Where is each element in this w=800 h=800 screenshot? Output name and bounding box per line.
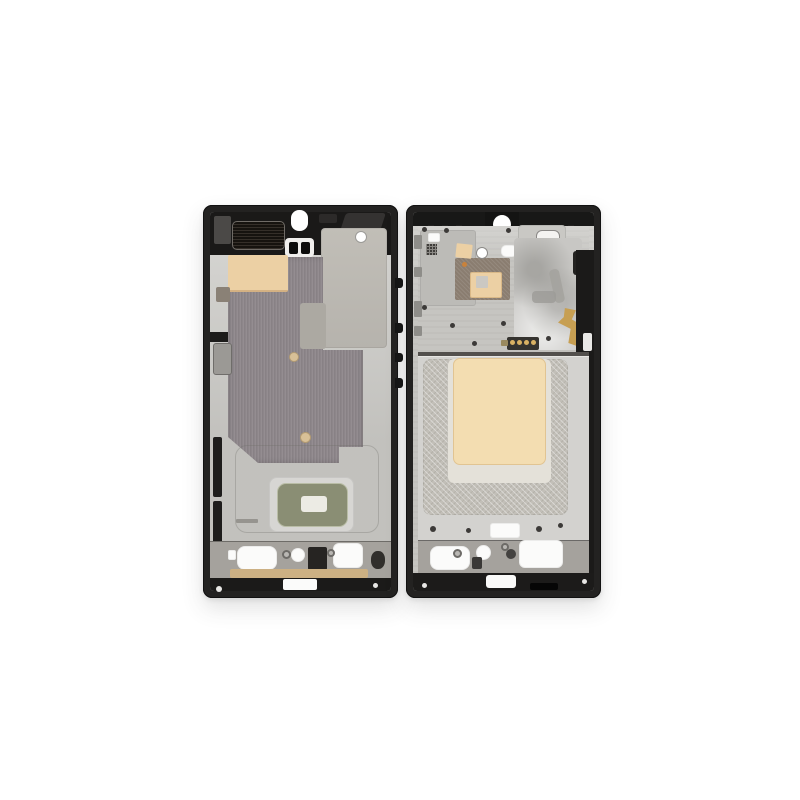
bottom-screw-a xyxy=(282,550,291,559)
gold-contact-2 xyxy=(517,340,522,345)
top-clip xyxy=(319,214,337,223)
cavity-screw-2 xyxy=(466,528,471,533)
bottom-screw-b xyxy=(327,549,335,557)
bottom-screw-a xyxy=(453,549,462,558)
usb-port-cutout xyxy=(283,579,317,590)
corner-antenna-block xyxy=(214,216,231,244)
screw-3 xyxy=(506,228,511,233)
screw-6 xyxy=(501,321,506,326)
coil-center-cutout xyxy=(301,496,327,512)
bottom-cutout-d xyxy=(228,550,236,560)
small-sticker-a xyxy=(455,243,472,259)
left-tab-2 xyxy=(414,267,422,277)
screw-dot-upper xyxy=(289,352,299,362)
speaker-mesh xyxy=(232,221,285,250)
usb-port-cutout xyxy=(486,575,516,588)
antenna-slot-mid xyxy=(213,437,222,497)
screw-hole-white xyxy=(476,247,488,259)
gold-contact-3 xyxy=(524,340,529,345)
cavity-screw-4 xyxy=(558,523,563,528)
gold-contact-4 xyxy=(531,340,536,345)
band-sliver xyxy=(583,333,592,351)
laser-etched-marking xyxy=(236,519,258,523)
bottom-cutout-a xyxy=(430,546,470,570)
side-button-nub-1 xyxy=(395,278,403,288)
bottom-screw-b xyxy=(501,543,509,551)
bottom-hole-right xyxy=(373,583,378,588)
cavity-cutout xyxy=(490,523,520,538)
screw-2 xyxy=(444,228,449,233)
side-button-nub-4 xyxy=(395,378,403,388)
bottom-cutout-c xyxy=(333,543,363,568)
bottom-cutout-c xyxy=(519,540,563,568)
battery-adhesive-sticker xyxy=(453,358,546,465)
adhesive-sticker xyxy=(228,255,288,292)
bottom-hole-left xyxy=(216,586,222,592)
bottom-hole-left xyxy=(422,583,427,588)
emi-shield-sheet xyxy=(321,228,387,348)
sensor-window-right xyxy=(301,242,310,254)
mic-hole xyxy=(291,210,308,231)
cavity-screw-1 xyxy=(430,526,436,532)
gold-antenna-strip xyxy=(230,569,368,578)
screw-8 xyxy=(546,336,551,341)
speaker-port-hole xyxy=(371,551,385,569)
bottom-cutout-b xyxy=(291,548,305,562)
sensor-window-left xyxy=(289,242,298,254)
screw-5 xyxy=(450,323,455,328)
bottom-cutout-a xyxy=(237,546,277,570)
bottom-black-module xyxy=(308,547,327,570)
gold-contact-1 xyxy=(510,340,515,345)
side-button-nub-3 xyxy=(395,353,403,362)
bottom-dark-bit xyxy=(472,557,482,569)
left-tab-3 xyxy=(414,301,422,317)
plate-smudge-b xyxy=(532,291,556,303)
cavity-screw-3 xyxy=(536,526,542,532)
bottom-dark-circle xyxy=(506,549,516,559)
orange-dot xyxy=(462,262,467,267)
qr-marking xyxy=(426,244,437,255)
contact-tail xyxy=(501,340,508,346)
screw-hole xyxy=(355,231,367,243)
midframe-back-view xyxy=(203,205,398,598)
speaker-slot xyxy=(530,583,558,590)
film-layer-step xyxy=(300,303,326,349)
bottom-hole-right xyxy=(582,579,587,584)
antenna-slot-upper xyxy=(210,332,228,342)
screw-4 xyxy=(422,305,427,310)
left-tab-4 xyxy=(414,326,422,336)
left-tab-1 xyxy=(414,235,422,249)
side-key-contact-block xyxy=(216,287,230,302)
screw-1 xyxy=(422,227,427,232)
center-sticker-window xyxy=(476,276,488,288)
cutout-a xyxy=(428,233,440,242)
side-button-nub-2 xyxy=(395,323,403,333)
screw-dot-lower xyxy=(300,432,311,443)
product-photo-canvas xyxy=(0,0,800,800)
screw-7 xyxy=(472,341,477,346)
sim-slot-block xyxy=(213,343,232,375)
midframe-front-view xyxy=(406,205,601,598)
